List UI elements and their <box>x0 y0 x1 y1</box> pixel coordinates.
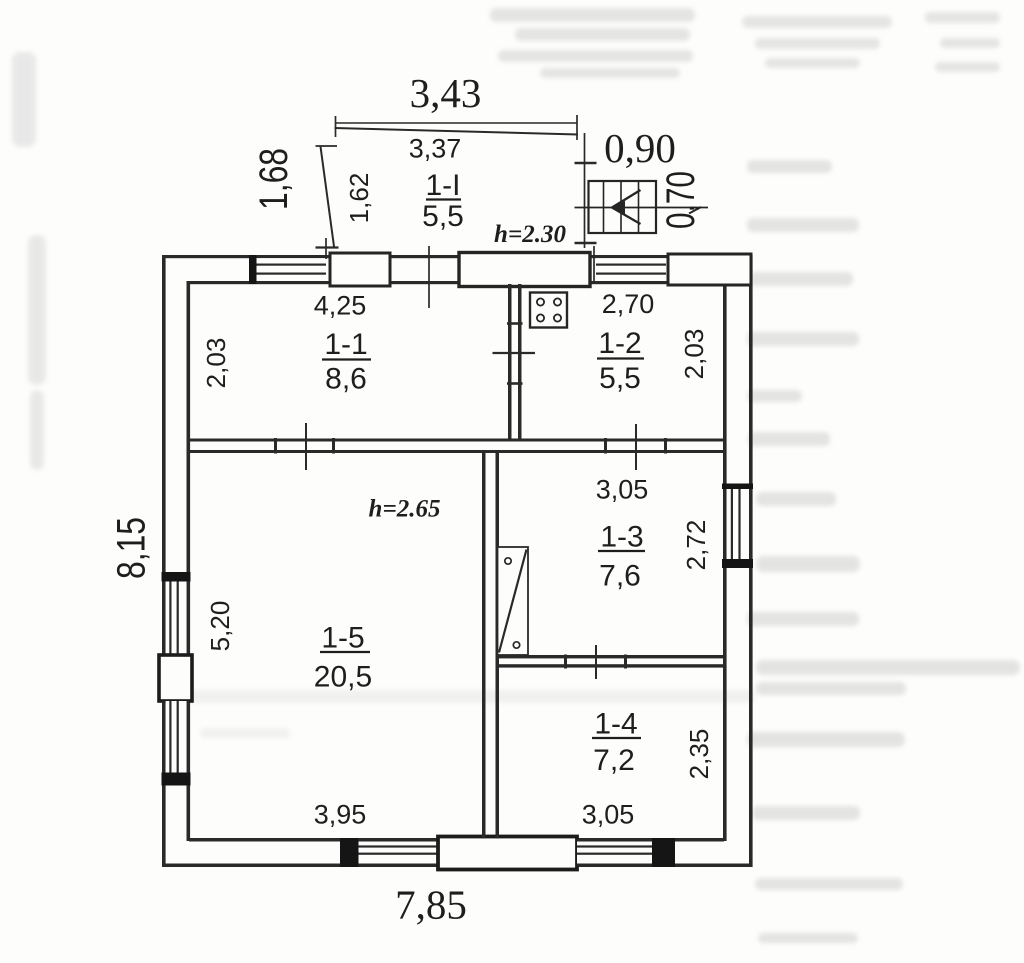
svg-text:2,35: 2,35 <box>684 729 714 780</box>
svg-text:1-I: 1-I <box>425 169 460 202</box>
svg-text:7,85: 7,85 <box>395 882 467 928</box>
svg-text:0,70: 0,70 <box>659 171 703 229</box>
svg-text:3,43: 3,43 <box>410 70 482 116</box>
svg-text:3,95: 3,95 <box>314 800 367 830</box>
svg-text:2,03: 2,03 <box>201 338 231 389</box>
svg-text:8,15: 8,15 <box>110 517 154 579</box>
svg-text:3,37: 3,37 <box>409 134 462 164</box>
svg-text:7,6: 7,6 <box>599 560 641 593</box>
svg-text:5,5: 5,5 <box>599 362 641 395</box>
svg-text:1-1: 1-1 <box>324 328 367 361</box>
svg-text:0,90: 0,90 <box>604 125 676 171</box>
svg-text:1-4: 1-4 <box>594 708 637 741</box>
svg-text:2,70: 2,70 <box>602 289 655 319</box>
svg-text:20,5: 20,5 <box>314 661 372 694</box>
svg-text:h=2.65: h=2.65 <box>369 496 441 523</box>
svg-text:1,68: 1,68 <box>252 148 296 210</box>
svg-text:8,6: 8,6 <box>325 363 367 396</box>
svg-text:h=2.30: h=2.30 <box>494 221 566 248</box>
svg-text:1-5: 1-5 <box>321 622 364 655</box>
svg-text:2,72: 2,72 <box>681 520 711 571</box>
svg-text:5,5: 5,5 <box>422 200 464 233</box>
svg-text:3,05: 3,05 <box>582 800 635 830</box>
svg-text:1,62: 1,62 <box>344 173 374 224</box>
svg-text:1-2: 1-2 <box>598 327 641 360</box>
svg-text:5,20: 5,20 <box>205 601 235 652</box>
svg-text:3,05: 3,05 <box>596 475 649 505</box>
svg-text:7,2: 7,2 <box>593 744 635 777</box>
svg-text:4,25: 4,25 <box>314 291 367 321</box>
svg-text:2,03: 2,03 <box>679 329 709 380</box>
svg-text:1-3: 1-3 <box>600 521 643 554</box>
